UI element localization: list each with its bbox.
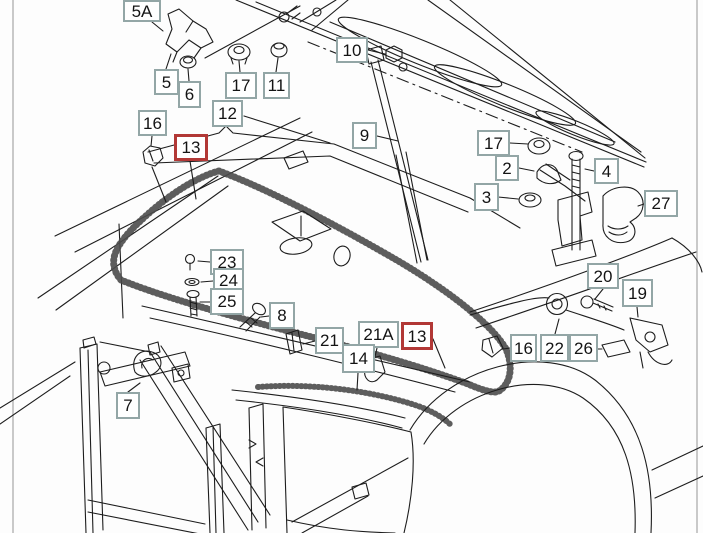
callout-label: 27 [652, 195, 671, 212]
callout-label: 8 [277, 307, 286, 324]
callout-box[interactable]: 25 [210, 288, 244, 315]
callout-label: 24 [219, 272, 238, 289]
callout-box[interactable]: 10 [336, 37, 368, 63]
callout-label: 26 [574, 340, 593, 357]
callout-box[interactable]: 19 [622, 279, 653, 307]
callout-label: 11 [268, 77, 286, 94]
callout-label: 25 [218, 293, 237, 310]
callout-box[interactable]: 6 [178, 81, 201, 108]
callout-label: 20 [594, 268, 613, 285]
callout-box-highlighted[interactable]: 13 [174, 134, 208, 161]
callout-box[interactable]: 9 [352, 122, 377, 149]
callout-label: 7 [123, 397, 132, 414]
callout-box-highlighted[interactable]: 13 [401, 322, 433, 350]
callout-box[interactable]: 20 [587, 263, 619, 289]
callout-box[interactable]: 4 [594, 158, 619, 184]
callout-box[interactable]: 11 [263, 72, 290, 99]
callout-box[interactable]: 2 [495, 155, 519, 181]
callout-label: 21A [363, 326, 393, 343]
callout-box[interactable]: 12 [212, 100, 243, 127]
callout-label: 9 [360, 127, 369, 144]
callout-box[interactable]: 16 [510, 334, 537, 362]
callout-label: 4 [602, 163, 611, 180]
callout-label: 16 [143, 115, 162, 132]
callout-label: 2 [502, 160, 511, 177]
callout-box[interactable]: 7 [116, 392, 140, 419]
callout-box[interactable]: 3 [474, 183, 499, 211]
callout-box[interactable]: 26 [569, 334, 598, 362]
callout-label: 3 [482, 189, 491, 206]
callout-layer: 5A 5 6 17 11 12 16 13 10 9 17 2 3 4 27 [0, 0, 703, 533]
callout-label: 14 [349, 350, 368, 367]
callout-label: 6 [185, 86, 194, 103]
callout-box[interactable]: 16 [138, 110, 167, 136]
callout-box[interactable]: 8 [269, 302, 295, 329]
callout-label: 5A [132, 3, 153, 20]
callout-box[interactable]: 22 [540, 334, 569, 362]
callout-label: 13 [182, 139, 201, 156]
callout-label: 21 [320, 332, 339, 349]
callout-label: 13 [408, 328, 427, 345]
callout-box[interactable]: 21 [315, 327, 344, 354]
callout-box[interactable]: 17 [225, 72, 257, 99]
callout-box[interactable]: 17 [477, 130, 510, 156]
callout-box[interactable]: 5 [154, 69, 179, 95]
callout-label: 12 [218, 105, 237, 122]
parts-diagram-page: 5A 5 6 17 11 12 16 13 10 9 17 2 3 4 27 [0, 0, 703, 533]
callout-label: 5 [162, 74, 171, 91]
callout-box[interactable]: 14 [342, 344, 375, 373]
callout-label: 17 [484, 135, 503, 152]
callout-label: 19 [628, 285, 647, 302]
callout-label: 22 [545, 340, 564, 357]
callout-box[interactable]: 27 [644, 190, 678, 217]
callout-label: 10 [343, 42, 362, 59]
callout-box[interactable]: 5A [123, 0, 161, 22]
callout-label: 17 [232, 77, 251, 94]
callout-label: 16 [514, 340, 533, 357]
